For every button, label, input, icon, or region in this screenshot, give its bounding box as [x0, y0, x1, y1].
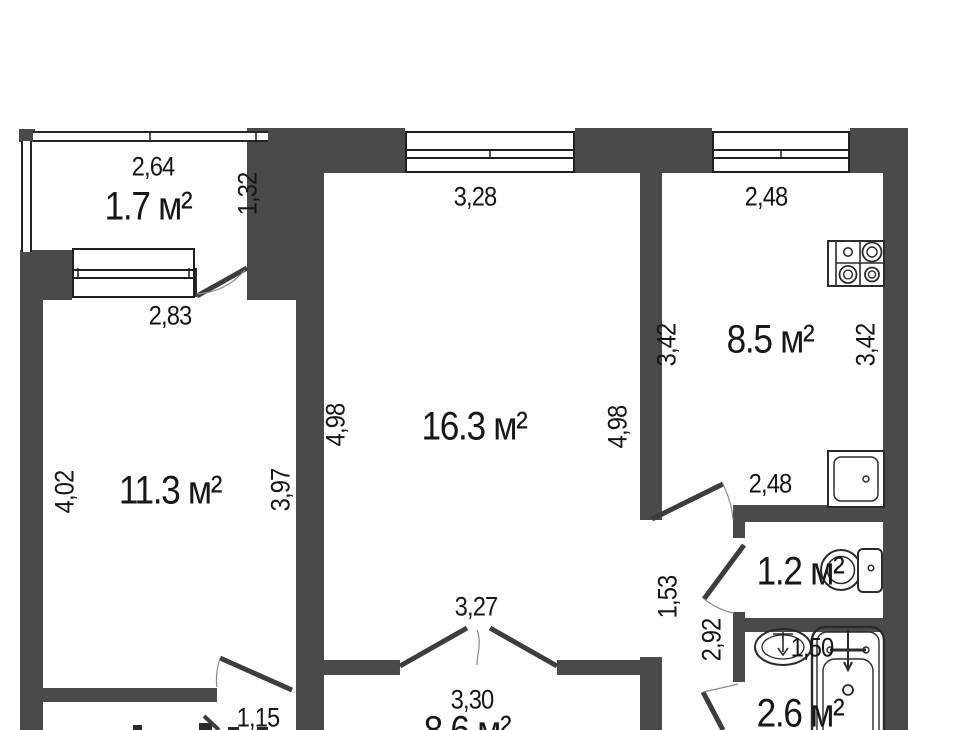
area-hall: 8.6 м²: [424, 709, 511, 730]
area-bathroom: 2.6 м²: [757, 692, 844, 730]
dim-room-left-doorway: 1,15: [237, 703, 280, 730]
dim-kitchen-side-right: 3,42: [851, 324, 882, 367]
area-balcony: 1.7 м²: [105, 185, 192, 230]
area-kitchen: 8.5 м²: [727, 318, 814, 363]
dim-kitchen-top: 2,48: [745, 182, 788, 213]
dim-room-center-doorway: 3,27: [455, 592, 498, 623]
dim-room-center-right: 4,98: [603, 406, 634, 449]
area-room-center: 16.3 м²: [422, 405, 527, 450]
dim-room-left-side-right: 3,97: [266, 469, 297, 512]
wc-door: [704, 545, 744, 613]
sink-icon: [828, 451, 884, 507]
dim-room-center-left: 4,98: [321, 404, 352, 447]
dim-balcony-width: 2,64: [132, 152, 175, 183]
dim-room-left-side-left: 4,02: [50, 471, 81, 514]
kitchen-door: [652, 484, 733, 520]
bathroom-door: [703, 684, 738, 730]
floor-plan: 2,64 1,32 1.7 м² 2,83 4,02 3,97 11.3 м² …: [0, 0, 960, 730]
area-wc: 1.2 м²: [757, 550, 844, 595]
stove-icon: [828, 241, 884, 286]
balcony-door: [196, 268, 247, 297]
dim-corridor-upper: 1,53: [653, 576, 684, 619]
dim-bathroom-width: 1,50: [791, 633, 834, 664]
dim-room-left-window: 2,83: [149, 301, 192, 332]
room-left-door: [216, 658, 292, 690]
room-center-double-door: [400, 628, 557, 666]
dim-balcony-depth: 1,32: [233, 173, 264, 216]
area-room-left: 11.3 м²: [119, 469, 221, 514]
bottom-left-door-fragment: [204, 716, 219, 730]
dim-kitchen-bottom: 2,48: [749, 469, 792, 500]
dim-kitchen-side-left: 3,42: [652, 324, 683, 367]
dim-corridor-lower: 2,92: [697, 619, 728, 662]
dim-room-center-window: 3,28: [454, 182, 497, 213]
